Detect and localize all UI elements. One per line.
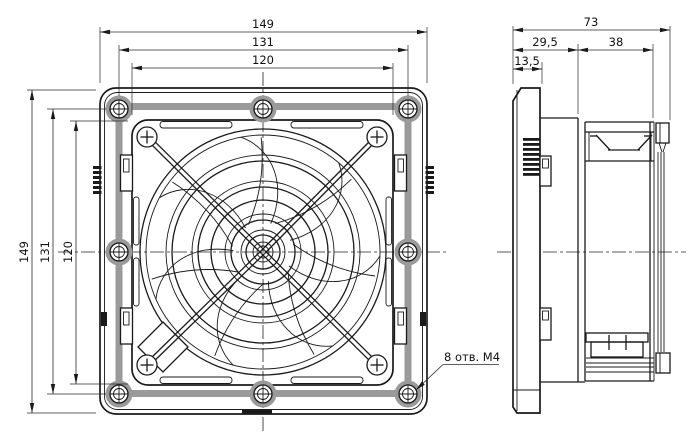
mounting-screw <box>395 96 422 123</box>
phillips-screw <box>367 355 387 375</box>
fan-profile-trapezoid <box>590 135 652 150</box>
mounting-screw <box>250 381 277 408</box>
side-bezel-clips <box>540 156 551 340</box>
holes-note: 8 отв. M4 <box>416 350 500 390</box>
note-holes-label: 8 отв. M4 <box>444 350 500 364</box>
mounting-screw <box>106 381 133 408</box>
right-latch-slot <box>420 312 426 326</box>
dim-label-width-mount: 131 <box>252 35 274 49</box>
side-view <box>513 88 670 413</box>
dim-label-depth-fan: 38 <box>609 35 624 49</box>
dim-label-depth-total: 73 <box>584 15 599 29</box>
side-fan-housing <box>585 122 654 381</box>
phillips-screw <box>137 355 157 375</box>
centerlines <box>58 72 686 431</box>
mounting-screw <box>106 239 133 266</box>
dim-label-width-outer: 149 <box>252 17 274 31</box>
note-leader-line <box>416 365 443 391</box>
dim-label-height-inner: 120 <box>61 241 75 263</box>
rear-clips <box>656 123 670 373</box>
dim-label-height-mount: 131 <box>38 241 52 263</box>
phillips-screw <box>137 127 157 147</box>
engineering-drawing: 149 131 120 149 131 120 73 29,5 38 13,5 <box>0 0 692 436</box>
dim-label-width-inner: 120 <box>252 53 274 67</box>
dim-label-depth-front: 29,5 <box>532 35 558 49</box>
phillips-screw <box>367 127 387 147</box>
mounting-screw <box>395 239 422 266</box>
mounting-screw <box>395 381 422 408</box>
dim-label-depth-bezel: 13,5 <box>514 54 540 68</box>
dim-label-height-outer: 149 <box>17 241 31 263</box>
bottom-latch-bar <box>242 410 272 414</box>
left-latch-slot <box>101 312 107 326</box>
terminal-block <box>586 333 648 357</box>
drawing-canvas: 149 131 120 149 131 120 73 29,5 38 13,5 <box>0 0 692 436</box>
mounting-screw <box>106 96 133 123</box>
front-view <box>93 88 434 414</box>
mounting-screw <box>250 96 277 123</box>
